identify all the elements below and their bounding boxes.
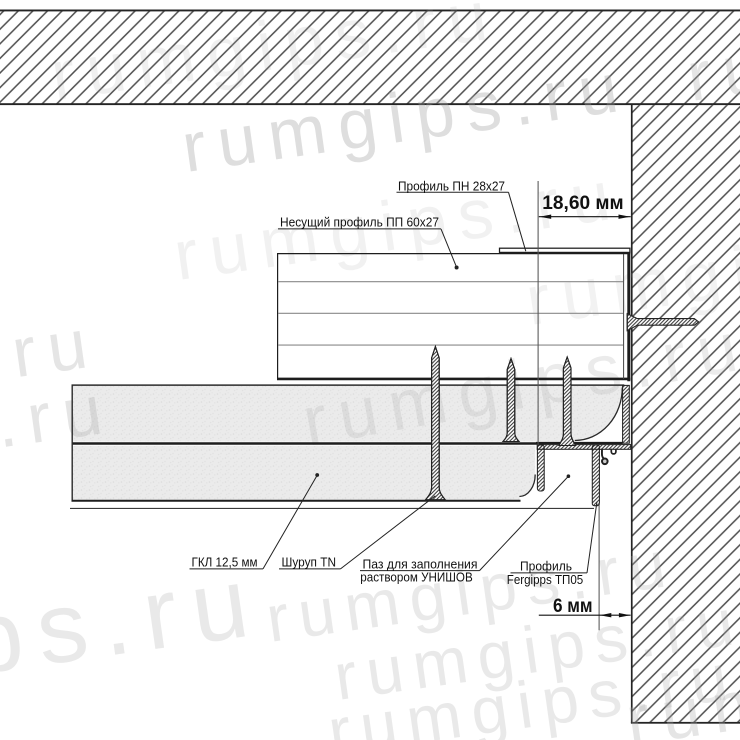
svg-text:Шуруп TN: Шуруп TN xyxy=(282,555,337,570)
svg-text:Несущий профиль ПП 60х27: Несущий профиль ПП 60х27 xyxy=(280,215,439,230)
svg-text:Профиль ПН 28х27: Профиль ПН 28х27 xyxy=(398,178,505,193)
svg-text:18,60 мм: 18,60 мм xyxy=(542,192,623,214)
svg-text:Fergipps ТП05: Fergipps ТП05 xyxy=(507,572,584,587)
svg-text:ГКЛ 12,5 мм: ГКЛ 12,5 мм xyxy=(192,555,258,570)
svg-text:6 мм: 6 мм xyxy=(553,595,593,617)
svg-text:раствором УНИШОВ: раствором УНИШОВ xyxy=(360,570,473,585)
